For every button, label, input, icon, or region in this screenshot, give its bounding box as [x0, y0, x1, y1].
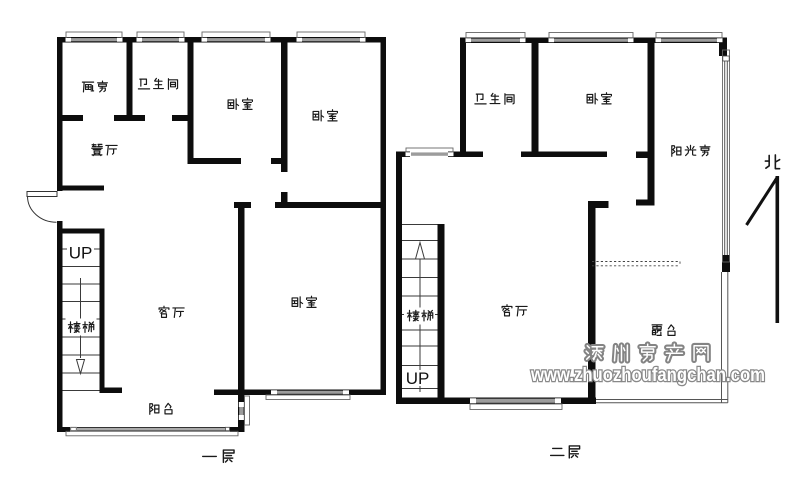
svg-text:UP: UP — [406, 369, 430, 388]
svg-text:UP: UP — [69, 244, 93, 263]
svg-text:www.zhuozhoufangchan.com: www.zhuozhoufangchan.com — [530, 365, 765, 386]
